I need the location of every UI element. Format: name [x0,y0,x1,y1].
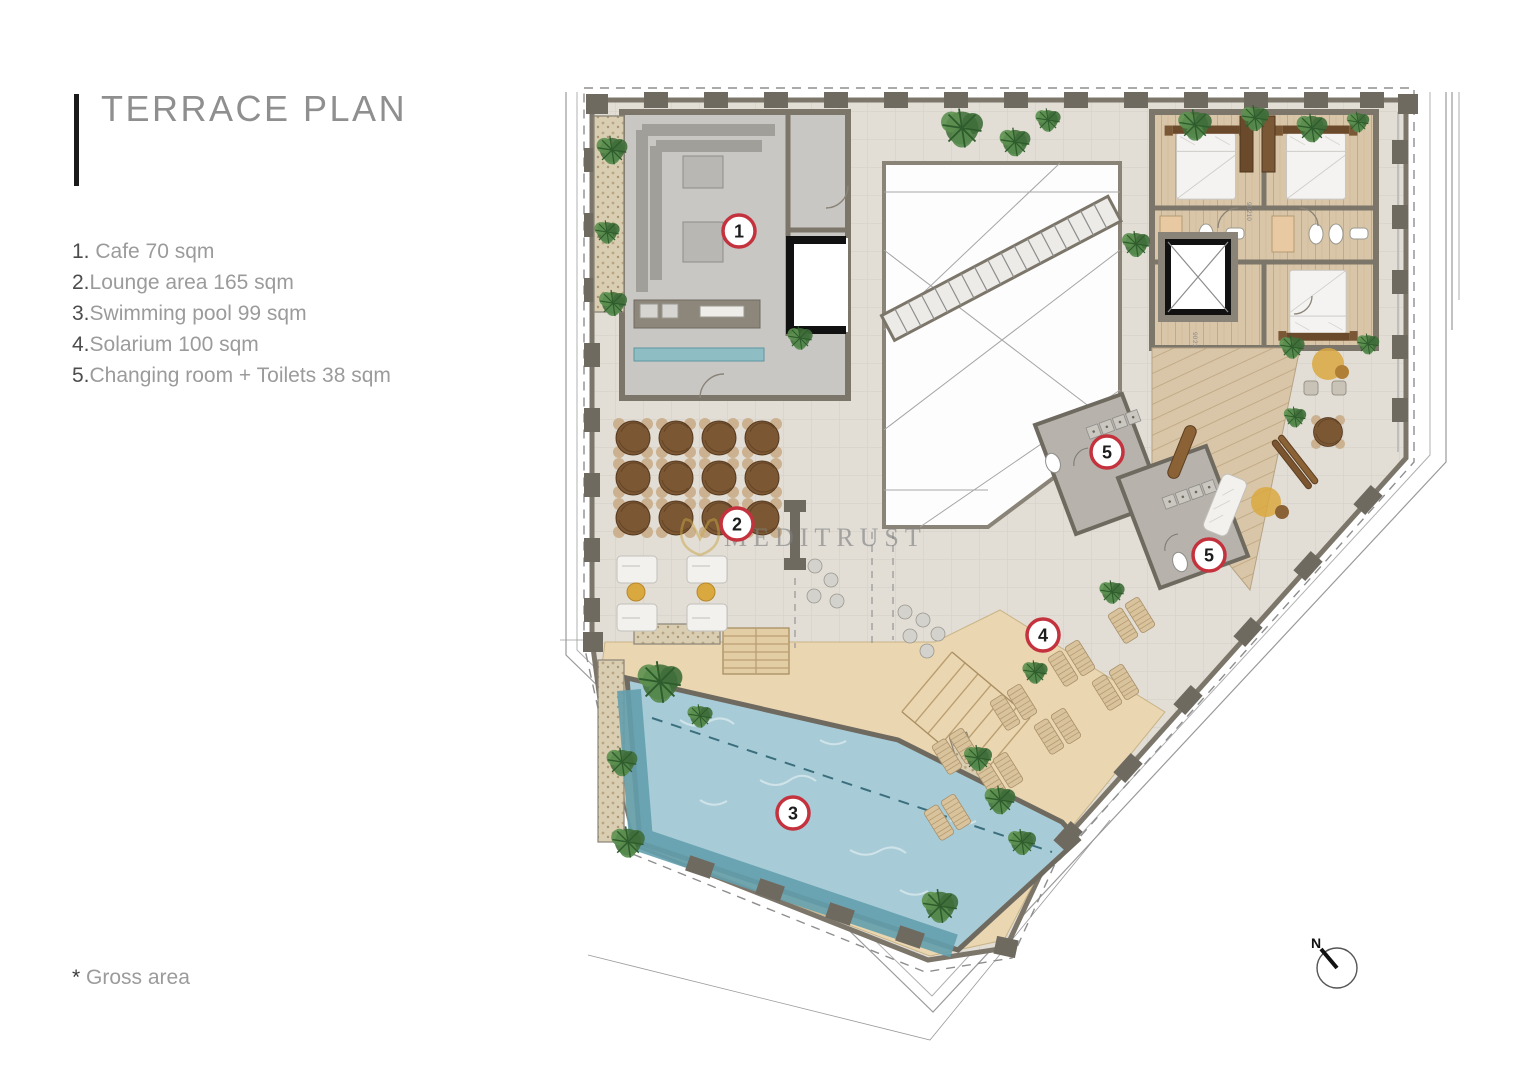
svg-text:1: 1 [734,222,744,242]
side-table [697,583,715,601]
terrace-plan-page: { "page": { "title": "TERRACE PLAN" }, "… [0,0,1528,1080]
legend-item: 1. Cafe 70 sqm [72,236,391,267]
area-marker-3: 3 [777,797,809,829]
legend-item: 4.Solarium 100 sqm [72,329,391,360]
area-marker-4: 4 [1027,619,1059,651]
door-dimension: 210 [1245,210,1252,221]
floor-plan-canvas: 90 210 90 210 [0,0,1528,1080]
deck-stairs [723,628,789,674]
legend-item: 3.Swimming pool 99 sqm [72,298,391,329]
elevator-shaft [786,238,848,332]
title-accent-bar [74,94,79,186]
area-marker-5: 5 [1091,436,1123,468]
svg-text:5: 5 [1204,546,1214,566]
svg-text:5: 5 [1102,443,1112,463]
side-table [627,583,645,601]
armchair [1304,381,1318,395]
shower [1272,216,1294,252]
gross-area-footnote: * Gross area [72,966,190,990]
area-marker-1: 1 [723,215,755,247]
cafe-room [622,112,848,398]
page-title: TERRACE PLAN [101,88,407,130]
door-dimension: 90 [1191,332,1198,340]
svg-text:3: 3 [788,804,798,824]
legend: 1. Cafe 70 sqm 2.Lounge area 165 sqm 3.S… [72,236,391,391]
armchair [1332,381,1346,395]
svg-text:4: 4 [1038,626,1048,646]
north-label: N [1311,935,1321,951]
legend-item: 5.Changing room + Toilets 38 sqm [72,360,391,391]
svg-text:2: 2 [732,515,742,535]
area-marker-2: 2 [721,508,753,540]
door-dimension: 90 [1245,202,1252,210]
area-marker-5: 5 [1193,539,1225,571]
cafe-bar-counter [634,348,764,361]
north-arrow: N [1311,935,1357,988]
legend-item: 2.Lounge area 165 sqm [72,267,391,298]
